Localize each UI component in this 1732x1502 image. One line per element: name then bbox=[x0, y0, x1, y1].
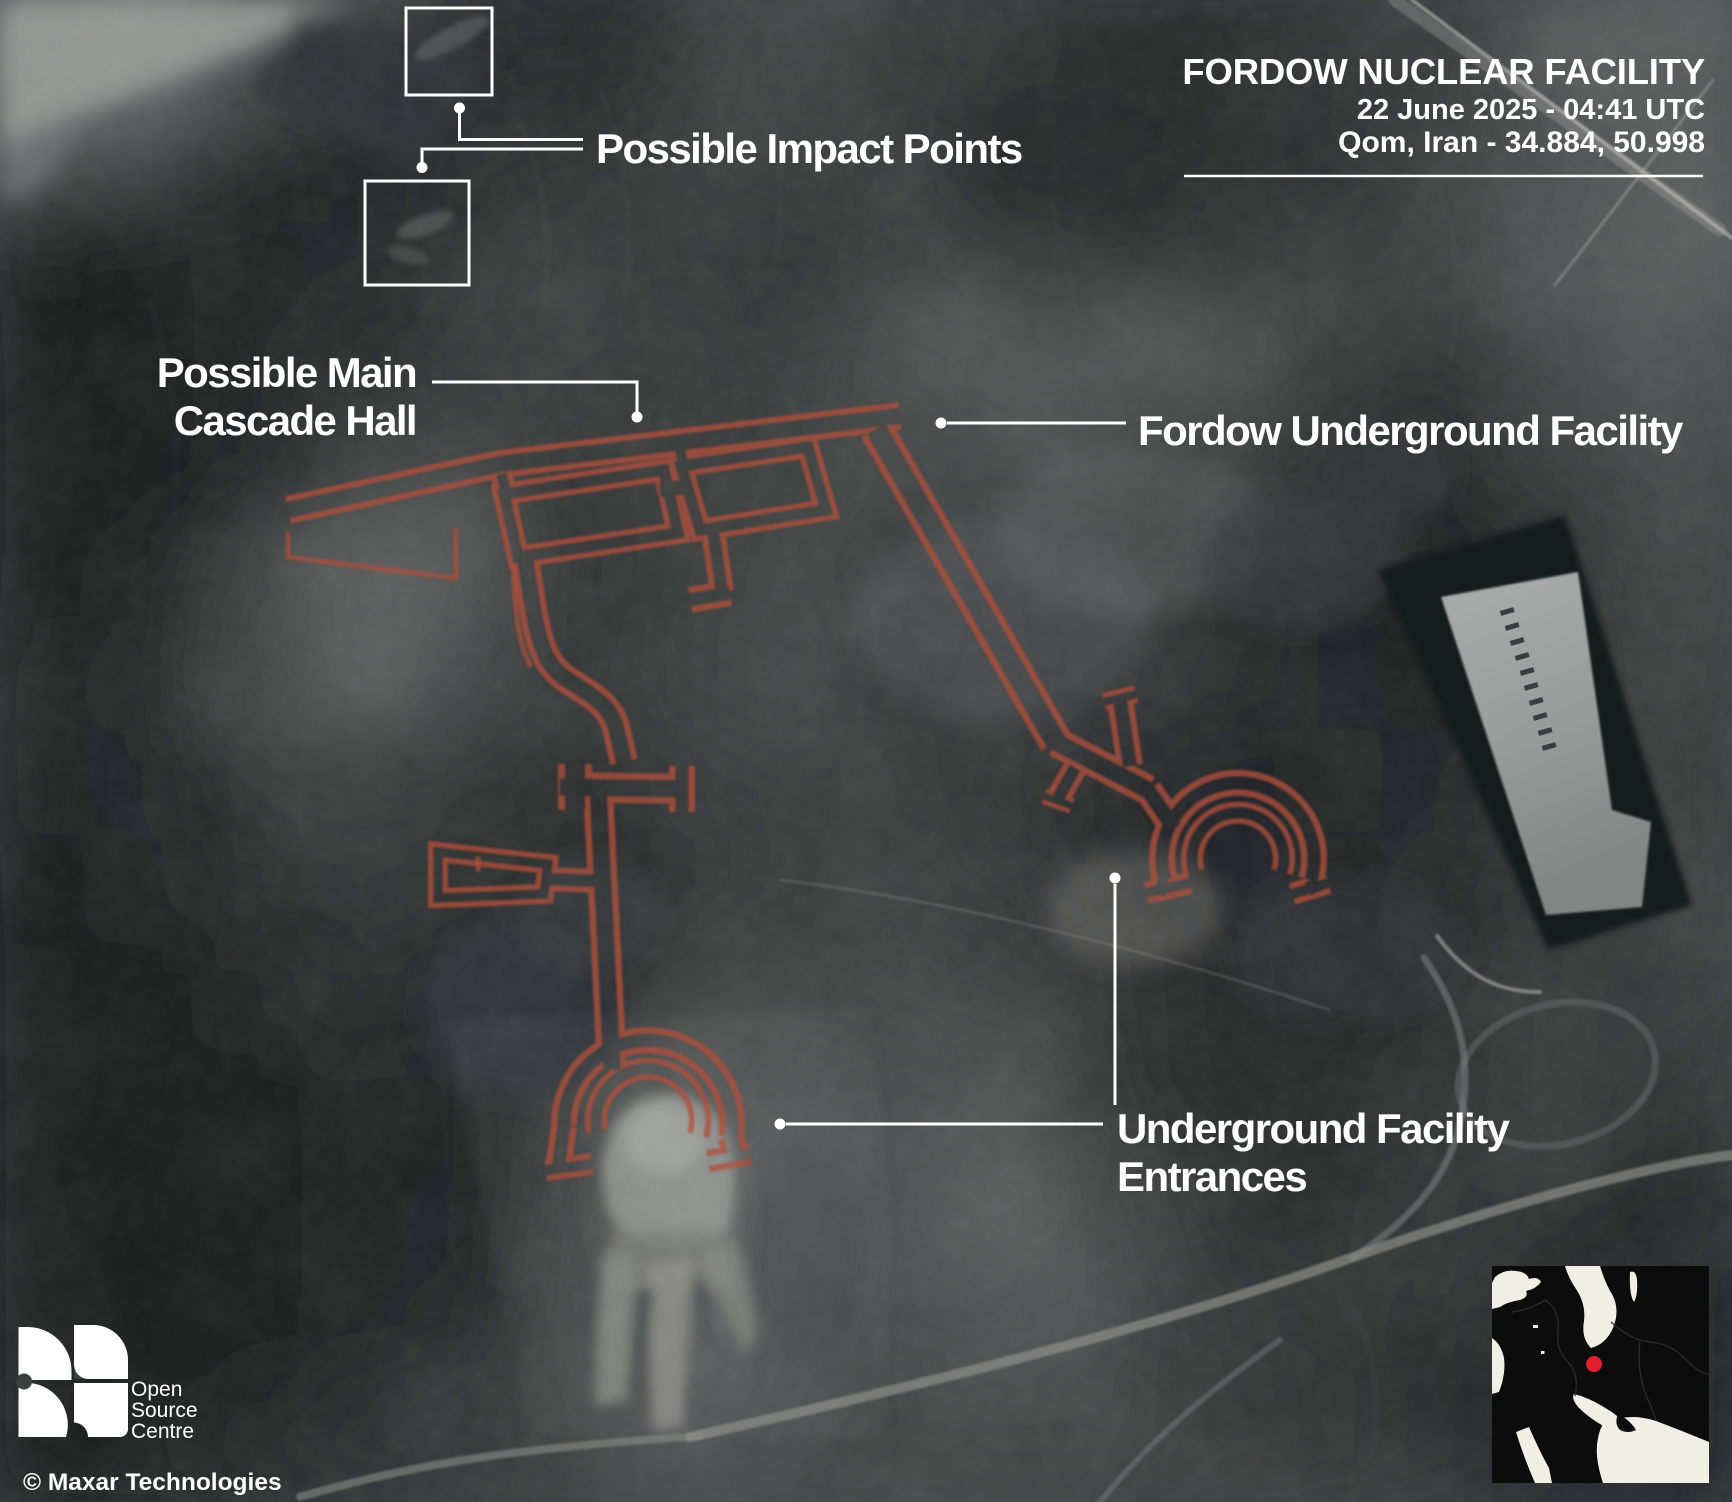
svg-text:Qom, Iran - 34.884, 50.998: Qom, Iran - 34.884, 50.998 bbox=[1338, 126, 1705, 159]
svg-text:Open: Open bbox=[131, 1378, 182, 1401]
svg-text:Source: Source bbox=[131, 1399, 198, 1422]
svg-text:Underground Facility: Underground Facility bbox=[1117, 1105, 1511, 1152]
svg-text:Possible Main: Possible Main bbox=[157, 349, 416, 396]
svg-text:Entrances: Entrances bbox=[1117, 1153, 1306, 1200]
svg-text:22 June 2025 - 04:41 UTC: 22 June 2025 - 04:41 UTC bbox=[1357, 94, 1705, 126]
svg-text:Centre: Centre bbox=[131, 1420, 194, 1443]
svg-text:Fordow Underground Facility: Fordow Underground Facility bbox=[1138, 407, 1684, 454]
svg-text:© Maxar Technologies: © Maxar Technologies bbox=[23, 1469, 282, 1496]
svg-text:Cascade Hall: Cascade Hall bbox=[174, 397, 416, 444]
svg-text:FORDOW NUCLEAR FACILITY: FORDOW NUCLEAR FACILITY bbox=[1182, 51, 1705, 92]
svg-text:Possible Impact Points: Possible Impact Points bbox=[596, 125, 1022, 172]
